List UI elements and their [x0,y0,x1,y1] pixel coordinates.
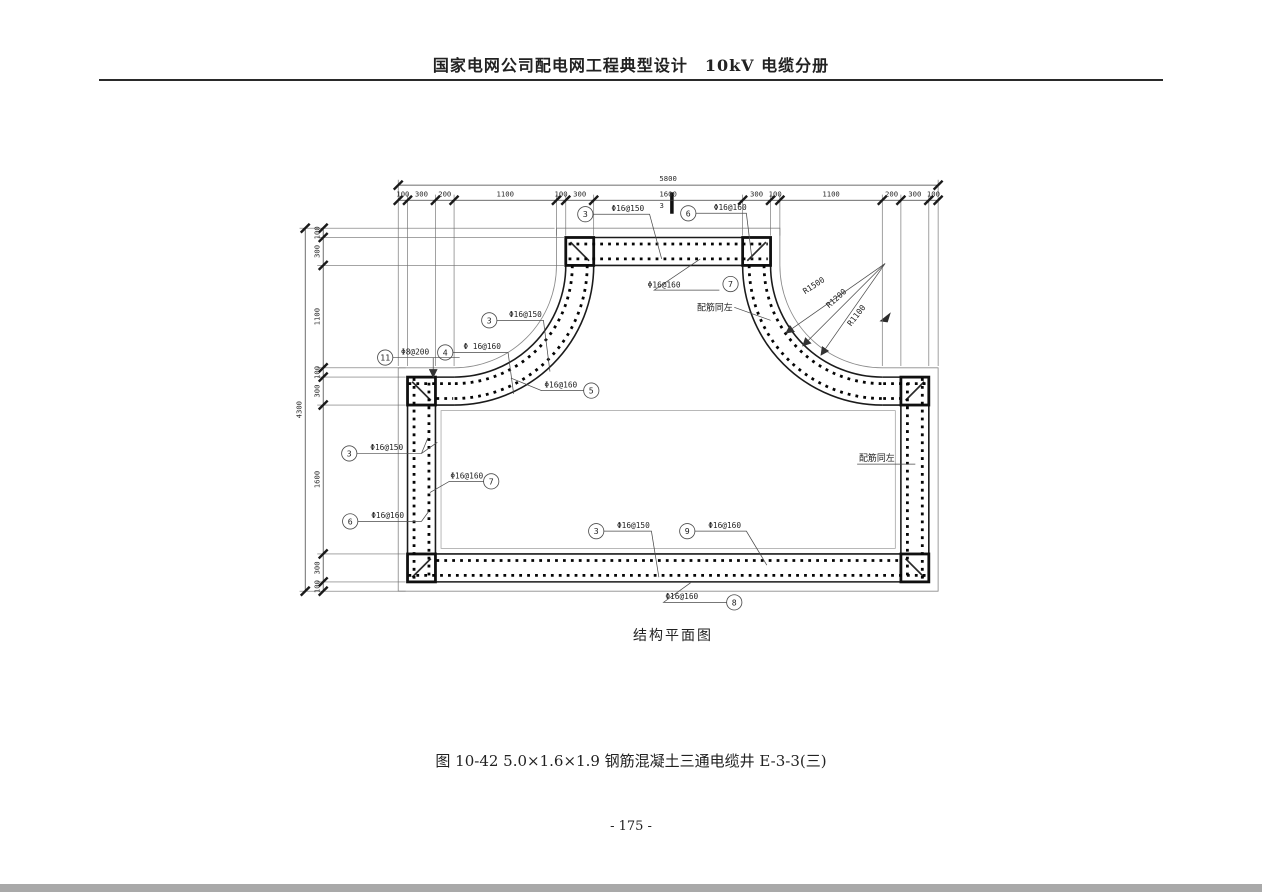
radius-leader [803,264,885,346]
document-page: 国家电网公司配电网工程典型设计 10kV 电缆分册 [0,0,1262,892]
callout-spec-hook-11: Φ8@200 [401,347,429,356]
dim-left-value: 100 [312,366,321,379]
callout-number-curve-3: 3 [487,315,492,325]
dim-top-value: 1100 [497,189,514,198]
callout-number-bottom-3: 3 [594,526,599,536]
structural-plan-drawing: 3 10030020011001003001600300100110020030… [280,170,960,645]
dim-top-value: 100 [555,189,568,198]
header-rule [99,79,1163,81]
note-top-text: 配筋同左 [697,302,733,314]
callout-number-top-6: 6 [686,208,691,218]
callout-spec-band-7: Φ16@160 [648,280,681,289]
dim-top-value: 1100 [822,189,839,198]
right-wall [901,377,929,582]
dim-top-value: 300 [908,189,921,198]
callout-number-leftwall-6: 6 [348,516,353,526]
page-number: - 175 - [610,819,652,834]
rebar-dots [408,244,927,581]
radius-label: R1500 [801,275,826,296]
callout-leader-top-3 [593,214,662,259]
dim-top-value: 200 [438,189,451,198]
small-arrow-mark [879,312,890,322]
main-top-wall-left [408,377,455,405]
note-right-text: 配筋同左 [859,452,895,464]
callout-leader-leftwall-7 [430,481,484,492]
dim-left-value: 300 [312,561,321,574]
dim-top-value: 100 [396,189,409,198]
bottom-wall [408,554,929,582]
dim-top-value: 200 [885,189,898,198]
callout-spec-leftwall-6: Φ16@160 [371,511,404,520]
left-wall [408,377,436,582]
callout-number-bottom-8: 8 [732,597,737,607]
callout-number-curve-5: 5 [589,386,594,396]
page-bottom-strip [0,884,1262,892]
callout-number-leftwall-3: 3 [347,448,352,458]
dim-left-value: 300 [312,385,321,398]
callout-spec-top-6: Φ16@160 [714,203,747,212]
dim-top-value: 300 [415,189,428,198]
callout-spec-bottom-9: Φ16@160 [708,521,741,530]
dim-left-value: 300 [312,245,321,258]
section-cut-label: 3 [659,201,663,210]
dim-left-value: 1100 [312,308,321,325]
branch-end-wall [566,237,771,265]
dim-top-value: 100 [927,189,940,198]
dim-top-overall: 5800 [659,174,676,183]
dim-left-value: 100 [312,580,321,593]
callout-spec-bottom-3: Φ16@150 [617,521,650,530]
dim-left-overall: 4300 [294,401,303,418]
callout-number-bottom-9: 9 [685,526,690,536]
dim-top-value: 300 [750,189,763,198]
callout-spec-leftwall-3: Φ16@150 [370,443,403,452]
callout-spec-bottom-8: Φ16@160 [665,592,698,601]
callout-number-curve-4: 4 [443,347,448,357]
callout-spec-curve-4: Φ 16@160 [463,342,501,351]
dim-left-value: 1600 [312,471,321,488]
callout-spec-curve-3: Φ16@150 [509,310,542,319]
dim-top-value: 300 [573,189,586,198]
callout-spec-leftwall-7: Φ16@160 [450,472,483,481]
radius-label: R1200 [824,287,848,310]
callout-spec-top-3: Φ16@150 [611,204,644,213]
callout-number-band-7: 7 [728,279,733,289]
drawing-title: 结构平面图 [633,625,713,645]
callout-number-top-3: 3 [583,209,588,219]
dim-top-value: 100 [769,189,782,198]
dim-top-value: 1600 [659,189,676,198]
callout-spec-curve-5: Φ16@160 [544,380,577,389]
callout-number-leftwall-7: 7 [489,476,494,486]
page-header-title: 国家电网公司配电网工程典型设计 10kV 电缆分册 [433,52,829,76]
dim-left-value: 100 [312,226,321,239]
floor-inner-outline [441,411,895,549]
callout-number-hook-11: 11 [380,353,390,363]
main-top-wall-right [882,377,929,405]
figure-caption: 图 10-42 5.0×1.6×1.9 钢筋混凝土三通电缆井 E-3-3(三) [435,750,826,771]
